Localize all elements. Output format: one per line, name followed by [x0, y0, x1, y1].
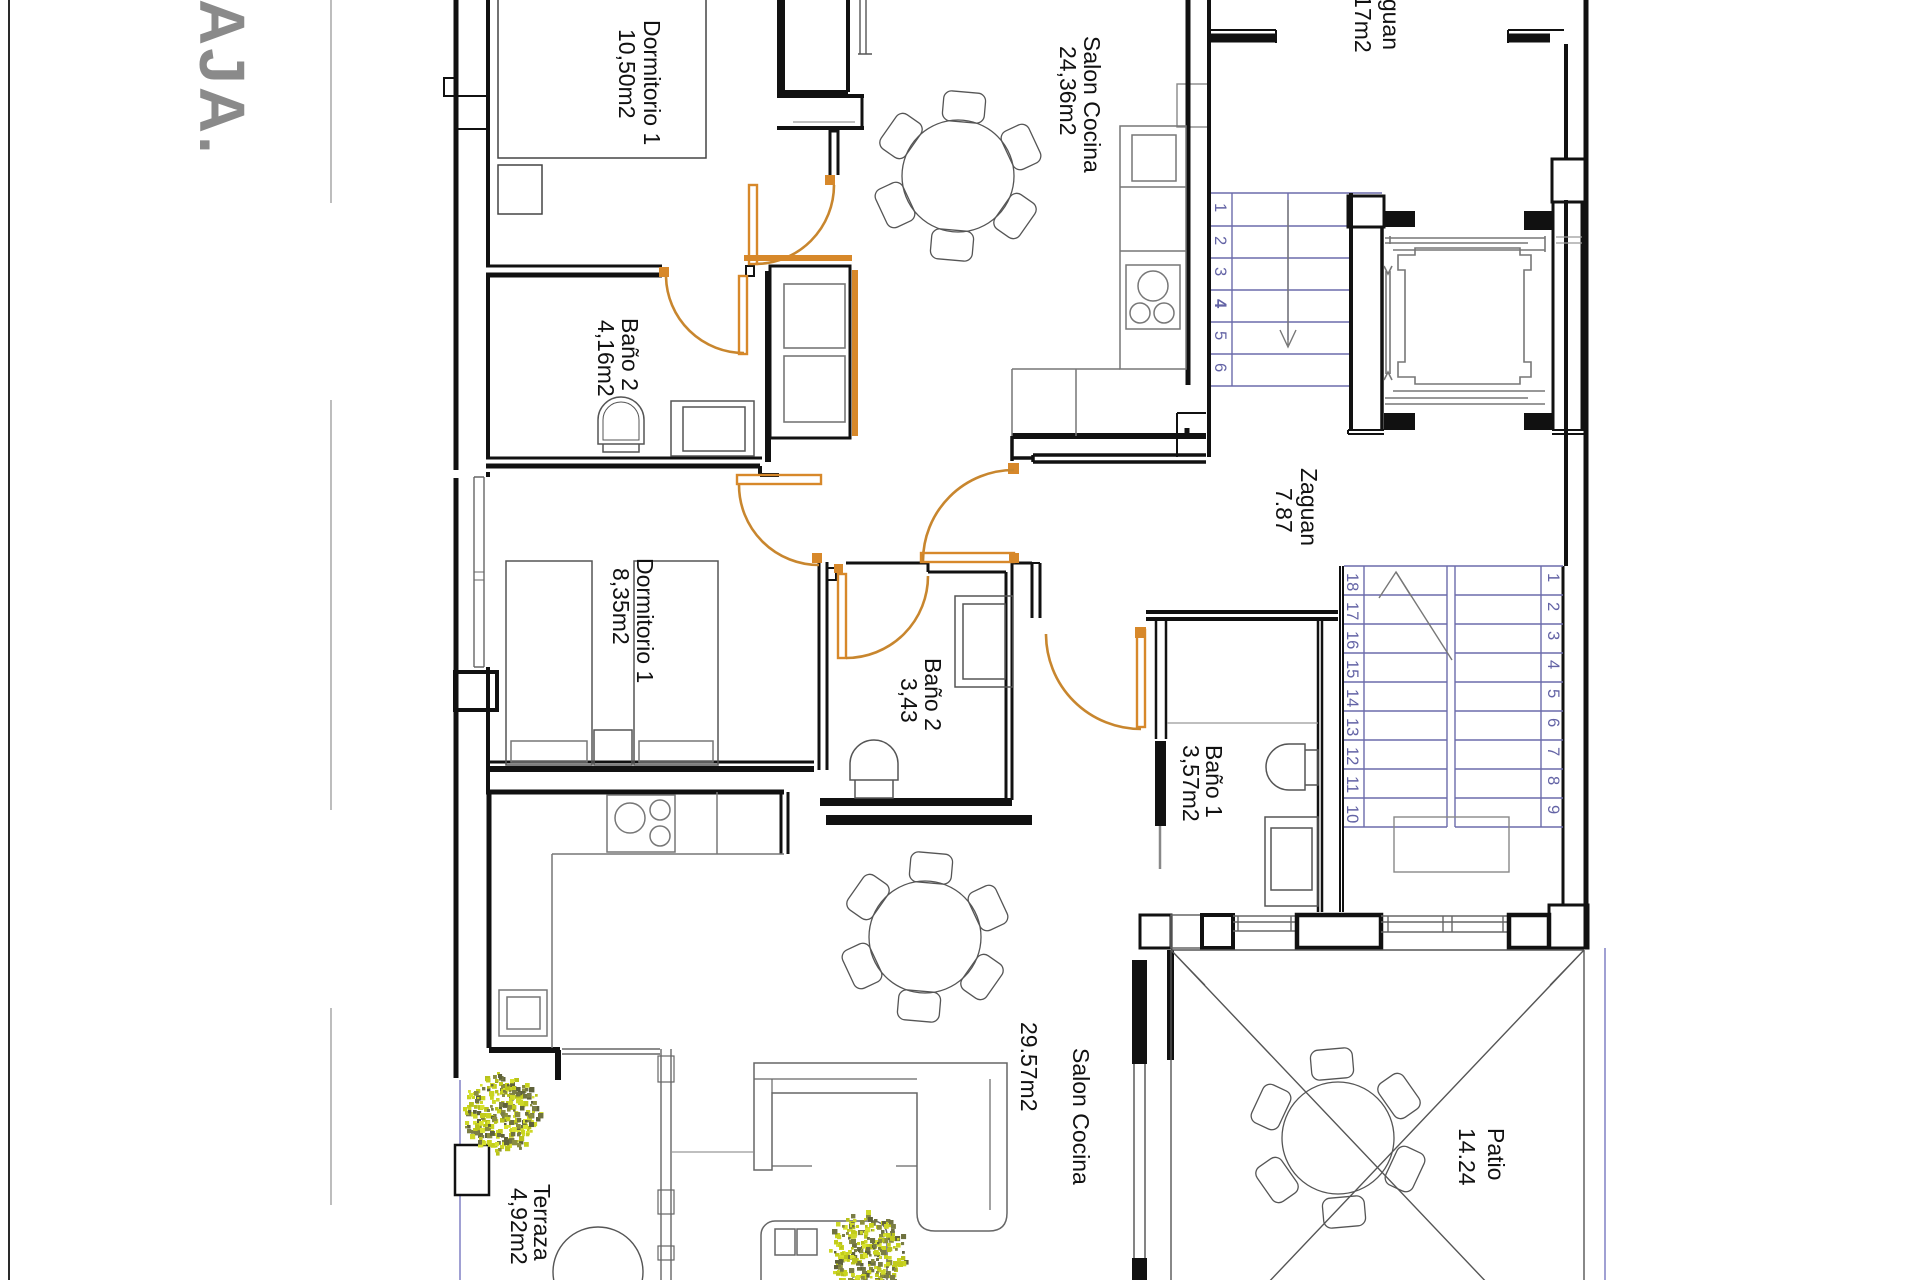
svg-text:AJA.: AJA. — [186, 0, 258, 157]
svg-text:Dormitorio 1: Dormitorio 1 — [632, 558, 658, 683]
svg-text:Dormitorio 1: Dormitorio 1 — [639, 20, 665, 145]
svg-text:Zaguan: Zaguan — [1296, 468, 1322, 546]
svg-text:4: 4 — [1544, 660, 1562, 669]
svg-text:6: 6 — [1544, 718, 1562, 727]
svg-text:Zaguan: Zaguan — [1378, 0, 1404, 50]
svg-text:29.57m2: 29.57m2 — [1016, 1022, 1042, 1112]
svg-text:3: 3 — [1211, 267, 1229, 276]
svg-text:7.87: 7.87 — [1271, 488, 1297, 533]
svg-text:14: 14 — [1343, 689, 1361, 707]
svg-text:5: 5 — [1544, 689, 1562, 698]
svg-text:3: 3 — [1544, 631, 1562, 640]
svg-text:4,92m2: 4,92m2 — [506, 1188, 532, 1265]
svg-text:Salon Cocina: Salon Cocina — [1079, 36, 1105, 173]
svg-text:18: 18 — [1343, 573, 1361, 591]
svg-text:13: 13 — [1343, 718, 1361, 736]
svg-text:3,57m2: 3,57m2 — [1178, 745, 1204, 822]
svg-text:Baño 2: Baño 2 — [920, 658, 946, 731]
svg-text:17: 17 — [1343, 602, 1361, 620]
svg-text:Salon Cocina: Salon Cocina — [1068, 1048, 1094, 1185]
svg-text:4,16m2: 4,16m2 — [593, 320, 619, 397]
svg-text:9: 9 — [1544, 805, 1562, 814]
svg-text:Baño 2: Baño 2 — [617, 318, 643, 391]
svg-text:8: 8 — [1544, 776, 1562, 785]
svg-text:7: 7 — [1544, 747, 1562, 756]
svg-text:6: 6 — [1211, 363, 1229, 372]
svg-text:8,17m2: 8,17m2 — [1350, 0, 1376, 53]
svg-text:2: 2 — [1211, 236, 1229, 245]
svg-text:1: 1 — [1544, 573, 1562, 582]
svg-text:2: 2 — [1544, 602, 1562, 611]
svg-text:15: 15 — [1343, 660, 1361, 678]
svg-text:8,35m2: 8,35m2 — [608, 568, 634, 645]
svg-text:3,43: 3,43 — [896, 678, 922, 723]
svg-text:12: 12 — [1343, 747, 1361, 765]
svg-text:4: 4 — [1211, 299, 1229, 309]
svg-text:10,50m2: 10,50m2 — [614, 29, 640, 119]
svg-text:10: 10 — [1343, 805, 1361, 823]
svg-text:5: 5 — [1211, 331, 1229, 340]
svg-text:16: 16 — [1343, 631, 1361, 649]
svg-text:1: 1 — [1211, 203, 1229, 212]
svg-text:24,36m2: 24,36m2 — [1055, 46, 1081, 136]
svg-text:14.24: 14.24 — [1454, 1128, 1480, 1186]
svg-text:Patio: Patio — [1483, 1128, 1509, 1180]
svg-text:11: 11 — [1343, 776, 1361, 793]
